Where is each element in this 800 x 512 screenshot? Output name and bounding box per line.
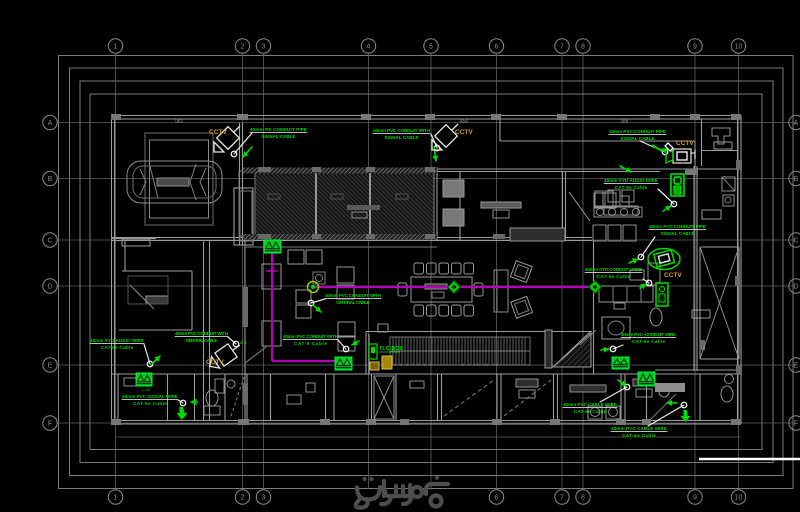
svg-text:SIGNAL CABLE: SIGNAL CABLE — [620, 136, 654, 141]
svg-text:CCTV: CCTV — [206, 359, 224, 366]
svg-text:7: 7 — [560, 495, 564, 502]
svg-text:1 2 3 4 5 6 7: 1 2 3 4 5 6 7 — [394, 363, 433, 367]
svg-text:TLC BOX: TLC BOX — [379, 346, 403, 352]
svg-text:CENTRAL CABLE: CENTRAL CABLE — [186, 338, 218, 343]
svg-text:6: 6 — [495, 44, 499, 51]
svg-text:C: C — [47, 238, 52, 245]
svg-text:4: 4 — [367, 44, 371, 51]
svg-text:SIGNAL CABLE: SIGNAL CABLE — [261, 134, 295, 139]
svg-text:2: 2 — [241, 44, 245, 51]
svg-text:3: 3 — [262, 44, 266, 51]
svg-text:10: 10 — [735, 495, 743, 502]
svg-text:40mm PVC CABLE WIRE: 40mm PVC CABLE WIRE — [563, 402, 617, 407]
svg-text:B: B — [794, 176, 799, 183]
svg-text:CCTV: CCTV — [664, 272, 682, 279]
svg-text:SIGNAL CABLE: SIGNAL CABLE — [660, 231, 694, 236]
svg-text:10: 10 — [735, 44, 743, 51]
svg-text:CAT-6e Cable: CAT-6e Cable — [596, 274, 631, 279]
svg-text:F: F — [794, 421, 798, 428]
svg-text:CAT-6e Cable: CAT-6e Cable — [632, 339, 665, 344]
svg-text:388: 388 — [620, 119, 629, 125]
svg-text:6: 6 — [495, 495, 499, 502]
svg-text:8: 8 — [581, 495, 585, 502]
svg-text:A: A — [794, 120, 799, 127]
svg-text:450: 450 — [460, 119, 469, 125]
svg-text:40mm PVC CONDUIT WITH: 40mm PVC CONDUIT WITH — [325, 293, 382, 298]
svg-text:40mm PVC -CONDUIT WIRE: 40mm PVC -CONDUIT WIRE — [621, 332, 676, 337]
svg-text:B: B — [48, 176, 53, 183]
svg-text:CENTRAL CABLE: CENTRAL CABLE — [336, 300, 370, 305]
svg-text:40mm PVC CONDUIT WITH: 40mm PVC CONDUIT WITH — [373, 128, 431, 133]
svg-text:40mm PVC CONDUIT PIPE: 40mm PVC CONDUIT PIPE — [609, 129, 666, 134]
svg-text:CAT-6e Cable: CAT-6e Cable — [574, 409, 607, 414]
svg-text:40mm SYD CONDUIT WIRE: 40mm SYD CONDUIT WIRE — [585, 267, 642, 272]
svg-text:D: D — [47, 284, 52, 291]
svg-text:D: D — [793, 284, 798, 291]
svg-text:1: 1 — [114, 495, 118, 502]
svg-text:9: 9 — [693, 44, 697, 51]
svg-text:SIGNAL CABLE: SIGNAL CABLE — [384, 135, 418, 140]
svg-text:F: F — [48, 421, 52, 428]
svg-text:L-03: L-03 — [142, 387, 151, 392]
svg-text:CAT-6e Cable: CAT-6e Cable — [101, 345, 134, 350]
svg-text:40mm PVC CONDUIT WITH: 40mm PVC CONDUIT WITH — [283, 334, 339, 339]
svg-text:40mm SYD AUDIO WIRE: 40mm SYD AUDIO WIRE — [90, 338, 144, 343]
svg-text:CAT-6 Cable: CAT-6 Cable — [294, 341, 327, 346]
svg-text:40mm PVC CABLE WIRE: 40mm PVC CABLE WIRE — [611, 426, 667, 431]
svg-text:5: 5 — [429, 44, 433, 51]
svg-text:CCTV: CCTV — [209, 129, 227, 136]
svg-text:8 9 10 11 12: 8 9 10 11 12 — [462, 363, 499, 367]
svg-text:961: 961 — [175, 119, 184, 125]
svg-text:E: E — [794, 363, 799, 370]
svg-text:40mm PE CONDUIT PIPE: 40mm PE CONDUIT PIPE — [250, 127, 307, 132]
svg-text:C: C — [793, 238, 798, 245]
svg-text:d-8: d-8 — [240, 340, 247, 345]
svg-text:CCTV: CCTV — [676, 140, 694, 147]
svg-text:7: 7 — [560, 44, 564, 51]
svg-text:CAT-6e Cable: CAT-6e Cable — [133, 401, 167, 406]
svg-text:40mm PVC CONDUIT WITH: 40mm PVC CONDUIT WITH — [175, 331, 229, 336]
svg-text:40mm PVC CONDUIT PIPE: 40mm PVC CONDUIT PIPE — [649, 224, 706, 229]
svg-text:CAT-6e Cable: CAT-6e Cable — [622, 433, 656, 438]
svg-text:1: 1 — [114, 44, 118, 51]
svg-text:CAT-6e Cable: CAT-6e Cable — [615, 185, 648, 190]
svg-text:9: 9 — [693, 495, 697, 502]
svg-text:40mm PVC SIGNAL WIRE: 40mm PVC SIGNAL WIRE — [122, 394, 178, 399]
svg-text:8: 8 — [581, 44, 585, 51]
svg-text:40mm SYD AUDIO WIRE: 40mm SYD AUDIO WIRE — [604, 178, 658, 183]
svg-text:A: A — [48, 120, 53, 127]
svg-text:2: 2 — [241, 495, 245, 502]
svg-text:3: 3 — [262, 495, 266, 502]
svg-text:CCTV: CCTV — [455, 129, 473, 136]
svg-text:E: E — [48, 363, 53, 370]
